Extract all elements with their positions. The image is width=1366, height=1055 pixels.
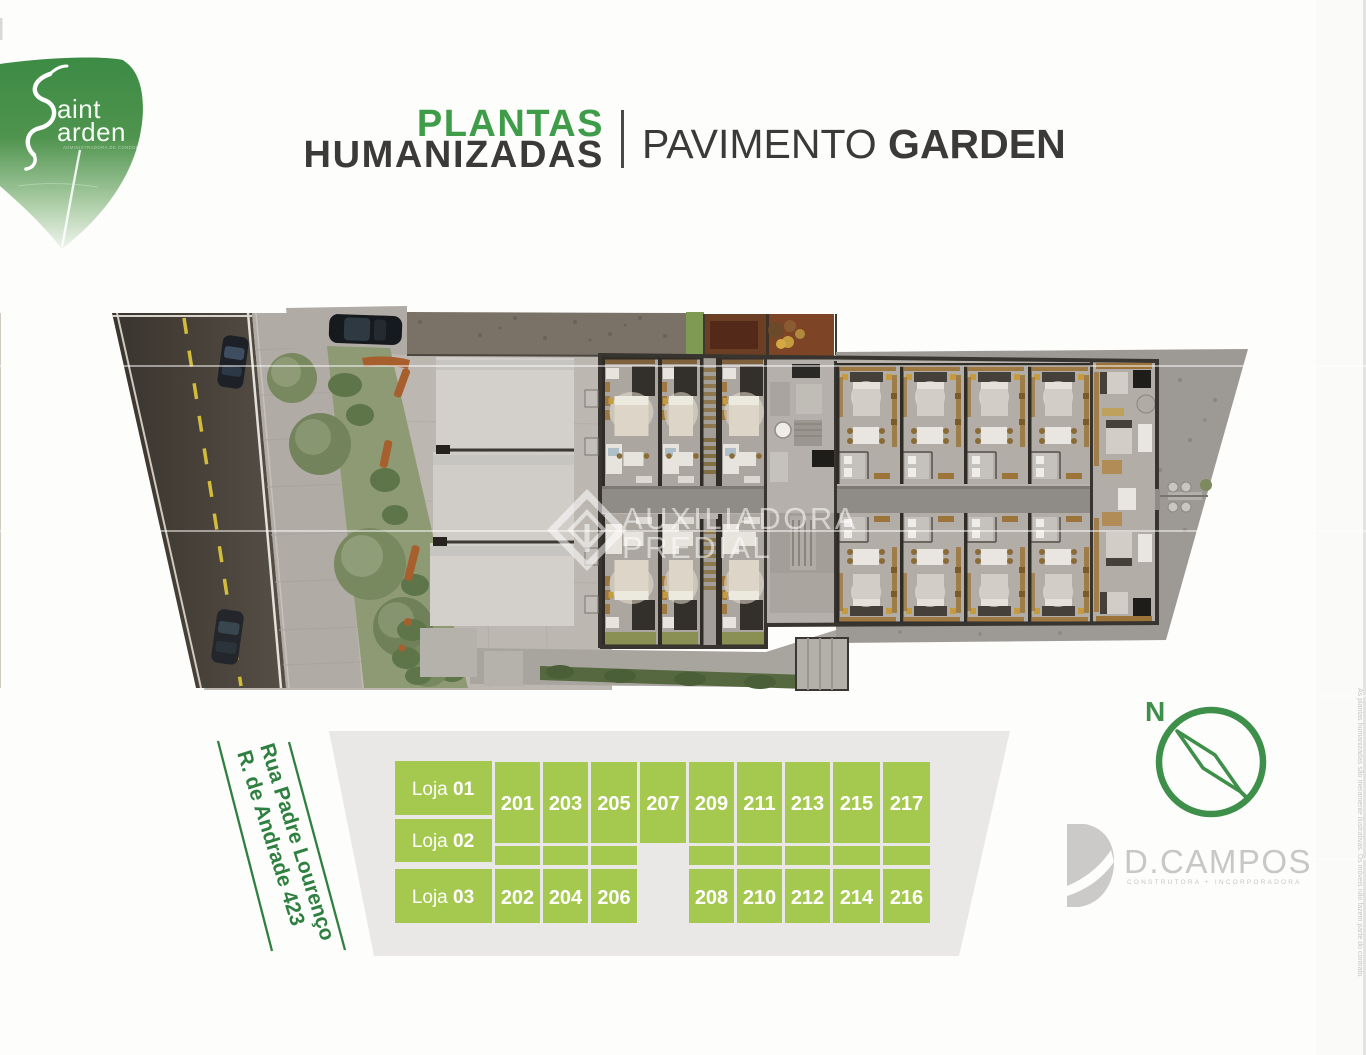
svg-text:217: 217	[890, 793, 923, 815]
svg-text:202: 202	[501, 887, 534, 909]
svg-text:203: 203	[549, 793, 582, 815]
svg-text:206: 206	[597, 887, 630, 909]
svg-text:216: 216	[890, 887, 923, 909]
svg-text:213: 213	[791, 793, 824, 815]
svg-text:201: 201	[501, 793, 534, 815]
svg-text:215: 215	[840, 793, 873, 815]
svg-text:PREDIAL: PREDIAL	[622, 530, 772, 565]
svg-text:HUMANIZADAS: HUMANIZADAS	[304, 134, 604, 176]
svg-text:209: 209	[695, 793, 728, 815]
svg-text:Loja 01: Loja 01	[412, 779, 475, 800]
svg-text:211: 211	[743, 793, 775, 815]
svg-text:Loja 02: Loja 02	[412, 831, 474, 852]
svg-text:N: N	[1145, 696, 1165, 727]
svg-text:arden: arden	[57, 117, 126, 147]
svg-text:Loja 03: Loja 03	[412, 887, 474, 908]
svg-text:CONSTRUTORA + INCORPORADORA: CONSTRUTORA + INCORPORADORA	[1127, 879, 1302, 886]
svg-text:214: 214	[840, 887, 874, 909]
svg-text:D.CAMPOS: D.CAMPOS	[1124, 843, 1312, 880]
svg-text:212: 212	[791, 887, 824, 909]
svg-text:205: 205	[597, 793, 630, 815]
svg-text:208: 208	[695, 887, 728, 909]
svg-text:ADMINISTRADORA DE CONDOMINIOS: ADMINISTRADORA DE CONDOMINIOS	[63, 145, 154, 150]
svg-text:210: 210	[743, 887, 776, 909]
svg-text:204: 204	[549, 887, 583, 909]
svg-text:207: 207	[646, 793, 679, 815]
svg-text:As plantas humanizadas são mer: As plantas humanizadas são meramente ilu…	[1356, 688, 1363, 978]
svg-text:PAVIMENTO GARDEN: PAVIMENTO GARDEN	[642, 121, 1066, 167]
